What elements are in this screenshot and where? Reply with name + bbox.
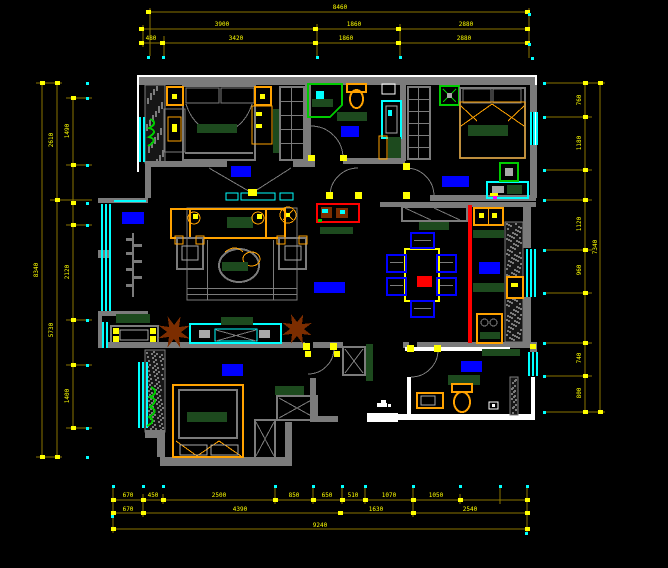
wall-kitchen-east-hatch-speckle <box>508 326 510 328</box>
living-rug-line-4 <box>273 240 274 300</box>
bed2-door-arc <box>406 168 434 196</box>
wall-bed3-west-hatch-speckle <box>148 360 150 362</box>
wall-kitchen-east-hatch-speckle <box>509 301 511 303</box>
kitchen-counter-a <box>473 230 504 238</box>
dining-chair-west-a <box>387 255 406 272</box>
wall-kitchen-east-hatch-speckle <box>511 272 513 274</box>
wall-bed3-west-hatch-speckle <box>159 385 161 387</box>
floor-plan-canvas: 8460390018602880480342018602880834026105… <box>0 0 668 568</box>
wall-kitchen-east-hatch-speckle <box>510 312 512 314</box>
wall-kitchen-east-hatch-speckle <box>516 336 518 338</box>
plant-stand-leaf-3 <box>126 252 134 255</box>
dim-tick <box>111 527 116 531</box>
dim-dot <box>86 82 89 85</box>
wall-bed3-west-hatch-speckle <box>161 364 163 366</box>
dining-chair-line-2 <box>414 308 431 309</box>
kitchen-fridge <box>507 277 523 298</box>
hall-bath-door-arc <box>330 168 358 196</box>
wall-bed3-west-hatch-speckle <box>158 401 160 403</box>
kitchen-counter-b <box>473 283 504 292</box>
wall-kitchen-east-hatch-speckle <box>518 307 520 309</box>
tv-cabinet-box-left <box>199 330 210 338</box>
wall-bath2-interior-speckle <box>512 407 514 409</box>
dim-tick <box>396 41 401 45</box>
wall-bed3-west-hatch-speckle <box>156 363 158 365</box>
wall-kitchen-east-hatch-speckle <box>511 302 513 304</box>
kitchen-fridge-handle <box>511 283 518 287</box>
wall-kitchen-east-hatch-speckle <box>506 238 508 240</box>
wall-kitchen-east-hatch-speckle <box>518 271 520 273</box>
wall-bed3-west-hatch-speckle <box>161 354 163 356</box>
wall-bed1-west-hatch-speckle <box>158 106 160 108</box>
wall-kitchen-east-hatch-speckle <box>509 331 511 333</box>
wall-bed3-west-hatch-speckle <box>153 361 155 363</box>
wall-bed1-west-hatch-speckle <box>147 98 149 100</box>
floor-plan-viewport: 8460390018602880480342018602880834026105… <box>0 0 668 568</box>
dim-text: 2880 <box>459 21 474 28</box>
wall-bed3-west-hatch-speckle <box>155 369 157 371</box>
dim-tick <box>313 41 318 45</box>
dim-dot <box>543 342 546 345</box>
kitchen-stove-shelf <box>480 332 500 339</box>
window-bay-2 <box>105 204 107 311</box>
dim-tick <box>111 498 116 502</box>
wall-bath2-east-step <box>531 377 535 417</box>
wall-bed1-west-hatch-speckle <box>153 89 155 91</box>
bed3-shelf <box>275 386 304 395</box>
bed2-door-hinge-a <box>403 192 410 199</box>
bath2-door-arc <box>411 350 438 377</box>
dim-dot <box>162 485 165 488</box>
wall-bed1-west-hatch-speckle <box>150 93 152 95</box>
wall-kitchen-east-hatch-speckle <box>506 319 508 321</box>
wall-kitchen-east-hatch-speckle <box>519 252 521 254</box>
wall-kitchen-east-hatch-speckle <box>515 244 517 246</box>
bath1-shelf <box>337 112 367 121</box>
wall-bed3-west-hatch-speckle <box>161 413 163 415</box>
window-bed3-west-3 <box>146 362 148 428</box>
wall-kitchen-east-hatch-speckle <box>511 236 513 238</box>
dim-dot <box>86 319 89 322</box>
dim-text: 740 <box>576 352 583 363</box>
bed3-door-arc <box>308 348 334 374</box>
wall-bath2-interior-speckle <box>511 393 513 395</box>
wall-bed3-west-hatch-speckle <box>159 425 161 427</box>
wall-bed3-west-hatch-speckle <box>154 424 156 426</box>
kitchen-sink-drain-a <box>479 213 484 218</box>
entry-glyph-top <box>381 400 386 403</box>
wall-kitchen-east-hatch-speckle <box>517 245 519 247</box>
wall-bath2-interior-speckle <box>514 380 516 382</box>
bath2-toilet-bowl <box>454 392 470 412</box>
wall-bed3-west-hatch-speckle <box>161 374 163 376</box>
wall-bed3-west-hatch-speckle <box>156 403 158 405</box>
dim-tick <box>40 455 45 459</box>
dim-text: 760 <box>576 94 583 105</box>
shaft-cross <box>345 349 363 373</box>
dim-dot <box>147 56 150 59</box>
dim-dot <box>526 485 529 488</box>
wall-kitchen-east-hatch-speckle <box>516 234 518 236</box>
wall-bed1-west-hatch-speckle <box>159 155 161 157</box>
wall-kitchen-east-hatch-speckle <box>520 263 522 265</box>
dim-text: 960 <box>576 264 583 275</box>
door-jamb-c <box>530 344 536 349</box>
door-sill-bed1-mid <box>241 193 275 200</box>
dim-tick <box>71 426 76 430</box>
dim-tick <box>71 223 76 227</box>
wall-bath2-interior-speckle <box>511 398 513 400</box>
wall-bed3-west-hatch-speckle <box>154 365 156 367</box>
door-jamb-b <box>305 351 311 357</box>
wall-kitchen-east-hatch-speckle <box>506 253 508 255</box>
wall-kitchen-east-hatch-speckle <box>518 337 520 339</box>
dim-tick <box>583 291 588 295</box>
wall-kitchen-east-hatch-speckle <box>517 311 519 313</box>
wall-bed1-south-left <box>145 161 227 167</box>
dim-tick <box>598 410 603 414</box>
dim-tick <box>525 498 530 502</box>
dim-tick <box>340 498 345 502</box>
wall-bed3-west-hatch-speckle <box>157 387 159 389</box>
wall-kitchen-east-hatch-speckle <box>512 262 514 264</box>
wall-kitchen-east-hatch-speckle <box>519 333 521 335</box>
dim-tick <box>583 341 588 345</box>
dim-dot <box>86 427 89 430</box>
wall-kitchen-east-hatch-speckle <box>512 328 514 330</box>
wall-kitchen-east-hatch-speckle <box>510 327 512 329</box>
bath2-toilet-tank <box>452 384 472 392</box>
dim-text: 450 <box>148 492 159 499</box>
window-bed2-east-2 <box>533 112 535 145</box>
dim-text: 5730 <box>48 322 55 337</box>
dim-text: 1860 <box>339 35 354 42</box>
sofa-cushion <box>227 217 253 228</box>
wall-kitchen-east-hatch-speckle <box>506 223 508 225</box>
wall-kitchen-east-hatch-speckle <box>516 255 518 257</box>
wall-bed3-west-hatch-speckle <box>153 351 155 353</box>
bed1-dresser-lamp-glow <box>172 124 177 132</box>
dim-text: 1070 <box>382 492 397 499</box>
window-bay-sill <box>114 200 146 202</box>
bath2-door-hinge-a <box>407 345 414 352</box>
dim-tick <box>141 498 146 502</box>
dim-text: 1120 <box>576 216 583 231</box>
dim-tick <box>40 81 45 85</box>
door-sill-bed1-right <box>280 193 293 200</box>
dim-text: 650 <box>322 492 333 499</box>
window-kitchen-east-3 <box>534 249 536 297</box>
wall-kitchen-east-hatch-speckle <box>508 224 510 226</box>
wall-bed3-west-hatch-speckle <box>152 416 154 418</box>
sofa-dot-left <box>193 214 198 219</box>
wall-bed1-west-hatch-speckle <box>160 128 162 130</box>
wall-bed3-west-hatch-speckle <box>152 367 154 369</box>
dim-dot <box>142 485 145 488</box>
dim-tick <box>55 198 60 202</box>
dim-dot <box>86 202 89 205</box>
window-bath2-east-1 <box>528 352 530 376</box>
kitchen-sink-drain-b <box>492 213 497 218</box>
wall-bed3-west-hatch-speckle <box>146 352 148 354</box>
bed2-desk-pad <box>490 193 498 196</box>
wall-bed3-west-hatch-speckle <box>162 378 164 380</box>
wall-kitchen-east-hatch-speckle <box>506 274 508 276</box>
dim-text: 2540 <box>463 506 478 513</box>
bath2-room-label <box>461 361 482 372</box>
wall-kitchen-east-hatch-speckle <box>513 309 515 311</box>
balcony-table-leg-1 <box>113 328 119 334</box>
dim-text: 1400 <box>64 388 71 403</box>
bed2-desk-dot <box>493 196 497 199</box>
wall-kitchen-east-hatch-speckle <box>513 273 515 275</box>
wall-bed3-west-hatch-speckle <box>158 371 160 373</box>
window-bath2-east-2 <box>532 352 534 376</box>
dim-dot <box>274 485 277 488</box>
dim-tick <box>71 201 76 205</box>
wall-bath2-west <box>407 377 411 417</box>
entry-door-leaf <box>367 413 398 422</box>
bed2-headboard-right <box>493 89 521 103</box>
bath1-door-arc <box>311 126 343 158</box>
bath2-door-hinge-b <box>434 345 441 352</box>
wall-bath2-interior-speckle <box>515 399 517 401</box>
dim-dot <box>543 292 546 295</box>
bed1-nightstand-left-knob <box>172 94 177 99</box>
dining-chair-line-3 <box>390 262 403 263</box>
bed1-side-cabinet-drawer-2 <box>256 124 262 128</box>
bed2-desk-monitor <box>507 185 522 194</box>
living-room-label <box>122 212 144 224</box>
dim-text: 8340 <box>33 262 40 277</box>
wall-bed3-west-hatch-speckle <box>158 421 160 423</box>
dim-tick <box>313 27 318 31</box>
wall-kitchen-east-hatch-speckle <box>518 256 520 258</box>
hall-bath-door-hinge-a <box>355 192 362 199</box>
dim-dot <box>162 56 165 59</box>
wall-kitchen-east-hatch-speckle <box>520 227 522 229</box>
wall-bath2-interior-speckle <box>512 382 514 384</box>
wall-kitchen-east-hatch-speckle <box>512 247 514 249</box>
wall-kitchen-east-hatch-speckle <box>512 232 514 234</box>
wall-kitchen-east-hatch-speckle <box>509 250 511 252</box>
shaft-shelf <box>366 344 373 381</box>
wall-bath2-interior-speckle <box>513 401 515 403</box>
bed2-desk-keyboard <box>492 186 504 193</box>
wall-kitchen-east-hatch-speckle <box>519 303 521 305</box>
wall-kitchen-east-hatch-speckle <box>507 249 509 251</box>
dim-dot <box>543 249 546 252</box>
wall-bed1-west-hatch-speckle <box>156 86 158 88</box>
dim-text: 2500 <box>212 492 227 499</box>
wall-east-upper-a <box>530 85 537 112</box>
dim-tick <box>583 168 588 172</box>
wall-bed3-west-hatch-speckle <box>154 355 156 357</box>
wall-kitchen-east-hatch-speckle <box>509 337 511 339</box>
wall-kitchen-east-hatch-speckle <box>517 317 519 319</box>
dim-text: 1860 <box>347 21 362 28</box>
outer-wall-top-edge <box>137 75 537 77</box>
balcony-table-leg-4 <box>150 336 156 342</box>
dim-tick <box>598 81 603 85</box>
wall-kitchen-east-hatch-speckle <box>507 300 509 302</box>
bed3-door-hinge-b <box>330 343 337 350</box>
dim-dot <box>86 456 89 459</box>
wall-kitchen-east-hatch-speckle <box>511 257 513 259</box>
wall-bed3-west-hatch-speckle <box>155 359 157 361</box>
wall-kitchen-east-hatch-speckle <box>518 241 520 243</box>
dining-chair-line-6 <box>440 285 453 286</box>
window-bed1-west-1 <box>139 117 141 162</box>
wall-kitchen-east-hatch-speckle <box>510 240 512 242</box>
dining-chair-line-1 <box>414 240 431 241</box>
bath2-glyph-dot <box>492 404 495 407</box>
wall-bed3-west-hatch-speckle <box>149 364 151 366</box>
dim-tick <box>583 115 588 119</box>
wall-bed3-west-hatch-speckle <box>161 423 163 425</box>
wall-bed3-west-hatch-speckle <box>159 356 161 358</box>
wall-bed3-west-hatch-speckle <box>160 399 162 401</box>
dim-dot <box>525 532 528 535</box>
wall-kitchen-east-hatch-speckle <box>520 242 522 244</box>
dim-tick <box>161 498 166 502</box>
armchair-right <box>279 238 306 269</box>
dim-tick <box>338 511 343 515</box>
wall-kitchen-east-hatch-speckle <box>507 330 509 332</box>
plant-stand-leaf-5 <box>126 268 134 271</box>
wall-kitchen-east-hatch-speckle <box>513 339 515 341</box>
window-balcony-west-1 <box>102 322 104 348</box>
dim-dot <box>112 485 115 488</box>
wall-bed1-west-hatch-speckle <box>152 115 154 117</box>
bed2-door-hinge-b <box>403 163 410 170</box>
dim-tick <box>411 511 416 515</box>
dim-text: 7340 <box>592 239 599 254</box>
coffee-table-deco <box>222 262 248 271</box>
dim-text: 850 <box>289 492 300 499</box>
wall-kitchen-east-hatch-speckle <box>513 237 515 239</box>
wall-bed3-west-hatch-speckle <box>156 393 158 395</box>
wall-kitchen-east-hatch-speckle <box>519 237 521 239</box>
plant-stand-leaf-1 <box>126 238 134 241</box>
wall-kitchen-east-hatch-speckle <box>506 304 508 306</box>
living-rug-line-3 <box>207 240 208 300</box>
wall-balcony-west <box>98 316 102 348</box>
plant-stand-stem <box>132 233 134 297</box>
window-balcony-west-2 <box>106 322 108 348</box>
wall-bed3-west-hatch-speckle <box>148 400 150 402</box>
bath1-tall-cabinet <box>379 136 387 159</box>
art-cabinet-dot <box>318 219 322 222</box>
dim-tick <box>71 363 76 367</box>
wall-bed1-west-hatch-speckle <box>146 124 148 126</box>
dim-dot <box>531 57 534 60</box>
wall-kitchen-east-hatch-speckle <box>519 267 521 269</box>
window-bed2-east-1 <box>530 112 532 145</box>
wall-bed1-west-hatch-speckle <box>155 111 157 113</box>
tv-screen <box>221 317 253 325</box>
wall-kitchen-east-hatch-speckle <box>520 257 522 259</box>
bed1-door-hinge <box>248 189 257 196</box>
tv-cabinet-box-right <box>259 330 270 338</box>
wall-kitchen-east-hatch-speckle <box>519 231 521 233</box>
wall-bed3-west-hatch-speckle <box>148 370 150 372</box>
dim-dot <box>543 82 546 85</box>
wall-bath2-interior-speckle <box>513 391 515 393</box>
dim-tick <box>396 27 401 31</box>
dim-dot <box>86 364 89 367</box>
plant-stand-leaf-4 <box>134 260 142 263</box>
wall-kitchen-east-hatch-speckle <box>512 334 514 336</box>
sofa-dot-right <box>257 214 262 219</box>
kitchen-room-label <box>479 262 500 274</box>
wall-kitchen-east-hatch-speckle <box>515 259 517 261</box>
wall-kitchen-east-hatch-speckle <box>516 270 518 272</box>
wall-bed3-west-hatch-speckle <box>159 395 161 397</box>
wall-bath2-interior-speckle <box>512 412 514 414</box>
wall-bed3-west-hatch-speckle <box>151 392 153 394</box>
wall-bed3-west-hatch-speckle <box>162 427 164 429</box>
window-bay-3 <box>109 204 111 311</box>
wall-bed3-west-hatch-speckle <box>162 368 164 370</box>
dim-dot <box>459 485 462 488</box>
wall-kitchen-east-hatch-speckle <box>520 314 522 316</box>
living-rug-line-2 <box>187 294 297 295</box>
wall-kitchen-east-hatch-speckle <box>513 243 515 245</box>
window-bed3-west-1 <box>138 362 140 428</box>
dining-cabinet-diagonals <box>405 208 460 220</box>
dim-tick <box>525 27 530 31</box>
wall-east-upper-b <box>530 145 537 198</box>
bed1-room-label <box>231 166 251 177</box>
bed2-room-label <box>442 176 469 187</box>
art-cabinet-glint-b <box>340 210 345 214</box>
dining-chair-line-5 <box>440 262 453 263</box>
wall-kitchen-east-hatch-speckle <box>514 299 516 301</box>
hall-room-label <box>314 282 345 293</box>
balcony-table-leg-3 <box>113 336 119 342</box>
balcony-table-leg-2 <box>150 328 156 334</box>
dim-dot <box>111 515 114 518</box>
wall-bed3-west-hatch-speckle <box>157 377 159 379</box>
wall-kitchen-east-hatch-speckle <box>517 266 519 268</box>
dim-dot <box>543 169 546 172</box>
bed1-wardrobe-divider <box>291 88 292 159</box>
bed3-wardrobe-top-cross <box>279 398 315 418</box>
wall-bed3-west-hatch-speckle <box>159 405 161 407</box>
wall-kitchen-east-hatch-speckle <box>513 324 515 326</box>
dim-tick <box>139 27 144 31</box>
wall-kitchen-east-hatch-speckle <box>518 226 520 228</box>
wall-bay-pier <box>98 250 110 258</box>
dining-chair-west-b <box>387 278 406 295</box>
wall-bed3-west-hatch-speckle <box>150 428 152 430</box>
dim-tick <box>363 498 368 502</box>
dim-dot <box>499 485 502 488</box>
wall-kitchen-east-hatch-speckle <box>515 223 517 225</box>
dim-dot <box>543 116 546 119</box>
bath1-shower-mat <box>312 99 333 107</box>
bed3-drawer-right <box>211 445 238 455</box>
dim-tick <box>458 498 463 502</box>
dim-dot <box>528 13 531 16</box>
bath2-shelf-north <box>482 349 520 356</box>
wall-kitchen-east-hatch-speckle <box>508 239 510 241</box>
wall-kitchen-east-hatch-speckle <box>511 251 513 253</box>
wall-kitchen-east-hatch-speckle <box>509 316 511 318</box>
wall-kitchen-east-hatch-speckle <box>511 338 513 340</box>
wall-kitchen-east-hatch-speckle <box>511 323 513 325</box>
